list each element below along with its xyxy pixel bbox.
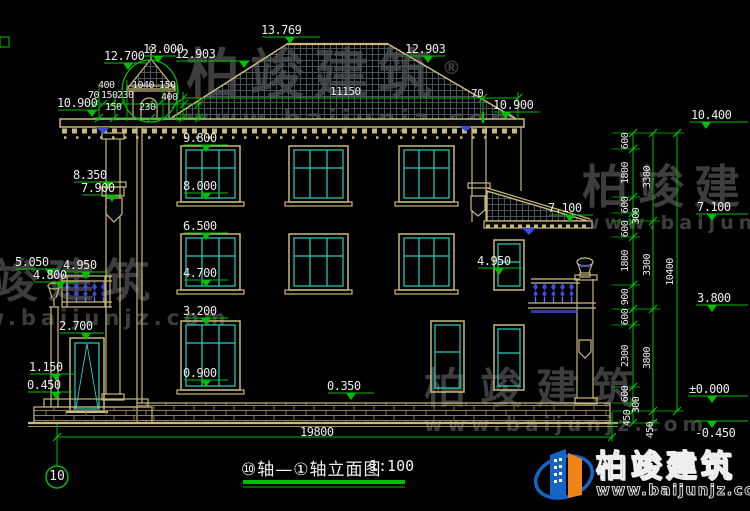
lvl-8000: 8.000 (183, 180, 217, 192)
stone-base (34, 399, 610, 423)
lvl-0900: 0.900 (183, 367, 217, 379)
dim-150-b: 150 (101, 91, 118, 101)
logo-building-orange (568, 453, 582, 498)
ch-3300-1: 3300 (643, 166, 653, 188)
lvl-7100-right: 7.100 (697, 201, 731, 213)
dim-13769: 13.769 (261, 24, 301, 36)
lvl-2700: 2.700 (59, 320, 93, 332)
logo-brand-text: 柏竣建筑 (596, 441, 736, 486)
main-roof (168, 44, 518, 120)
lvl-0000: ±0.000 (689, 383, 729, 395)
dim-12903-left: 12.903 (175, 48, 215, 60)
ch-600-2: 600 (621, 197, 631, 214)
ch-3800: 3800 (643, 347, 653, 369)
lvl-6500: 6.500 (183, 220, 217, 232)
lvl-0350: 0.350 (327, 380, 361, 392)
dim-150-a: 150 (159, 81, 176, 91)
porch-bracket (522, 228, 536, 235)
ch-2300: 2300 (621, 345, 631, 367)
lvl-10900-right: 10.900 (493, 99, 533, 111)
ch-10400: 10400 (666, 258, 676, 286)
lvl-7100-center: 7.100 (548, 202, 582, 214)
axis-bubble-label: 10 (46, 469, 68, 484)
lvl-3800: 3.800 (697, 292, 731, 304)
entry-door (66, 338, 108, 412)
lvl-4800: 4.800 (33, 269, 67, 281)
lvl-3200: 3.200 (183, 305, 217, 317)
balcony-right (528, 258, 597, 404)
logo-url-text: www.baijunjz.com (596, 481, 750, 499)
lvl-9800: 9.800 (183, 132, 217, 144)
dim-12903-right: 12.903 (405, 43, 445, 55)
dim-230-b: 230 (139, 103, 156, 113)
lvl-5050: 5.050 (15, 256, 49, 268)
eave-bracket-mid (460, 126, 472, 132)
figure-title: ⑩轴—①轴立面图 (241, 455, 381, 480)
ch-1800-2: 1800 (621, 250, 631, 272)
urn-dot (586, 264, 589, 267)
dim-70-right: 70 (471, 88, 483, 99)
dim-230-a: 230 (117, 91, 134, 101)
balcony-frieze (531, 310, 578, 313)
logo-building-blue (550, 449, 566, 499)
cad-elevation-canvas: 柏竣建筑® www.baijunjz.com 柏竣建筑 www.baijunjz… (0, 0, 750, 511)
lvl-8350: 8.350 (73, 169, 107, 181)
lvl-1150: 1.150 (29, 361, 63, 373)
dim-400-b: 400 (161, 93, 178, 103)
eave-cornice (60, 119, 524, 138)
ch-3300-2: 3300 (643, 254, 653, 276)
dim-11150: 11150 (330, 86, 361, 97)
logo-icon (532, 441, 596, 507)
ch-450-2: 450 (646, 422, 656, 439)
dim-19800: 19800 (300, 426, 334, 438)
dim-70-left: 70 (88, 91, 99, 101)
brand-logo: 柏竣建筑 www.baijunjz.com (532, 441, 750, 509)
lvl-4950-right: 4.950 (477, 255, 511, 267)
ch-450-1: 450 (623, 410, 633, 427)
ch-300-2: 300 (632, 397, 642, 414)
ch-600-1: 600 (621, 133, 631, 150)
elevation-linework (0, 0, 750, 511)
lvl-10400: 10.400 (691, 109, 731, 121)
lvl-neg0450: -0.450 (695, 427, 735, 439)
lvl-0450: 0.450 (27, 379, 61, 391)
ch-600-4: 600 (621, 309, 631, 326)
wall-corners (51, 127, 521, 407)
urn-dot (580, 264, 583, 267)
ch-1800-1: 1800 (621, 162, 631, 184)
lvl-4700: 4.700 (183, 267, 217, 279)
cut-marker (0, 37, 9, 47)
dim-12700: 12.700 (104, 50, 144, 62)
ch-900: 900 (621, 289, 631, 306)
ch-600-3: 600 (621, 221, 631, 238)
lvl-4950-left: 4.950 (63, 259, 97, 271)
ch-300-1: 300 (632, 208, 642, 225)
lvl-7900: 7.900 (81, 182, 115, 194)
title-underline (243, 480, 405, 487)
figure-scale: 1:100 (369, 457, 414, 475)
dim-150-c: 150 (105, 103, 122, 113)
ch-600-5: 600 (621, 386, 631, 403)
dim-1040: 1040 (132, 81, 154, 91)
